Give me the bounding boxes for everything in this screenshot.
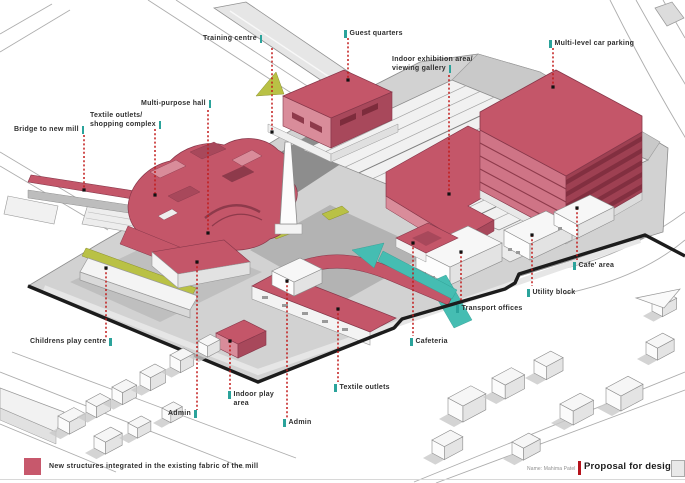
label-childrens-play-centre: Childrens play centre [30,338,112,347]
label-textile-outlets: Textile outlets [334,384,390,393]
marker-tick-icon [194,410,197,418]
label-text: Childrens play centre [30,338,106,347]
marker-tick-icon [209,100,212,108]
label-bridge-to-new-mill: Bridge to new mill [14,126,84,135]
label-cafe-area: Cafe' area [573,262,614,271]
marker-tick-icon [283,419,286,427]
sheet-bottom-edge [0,479,685,480]
label-text: Utility block [533,289,576,298]
label-admin-south: Admin [283,419,312,428]
label-text: Transport offices [462,305,523,314]
label-text: Admin [289,419,312,428]
legend-text: New structures integrated in the existin… [49,463,258,470]
label-text: Indoor exhibition area/ [392,56,473,65]
marker-tick-icon [573,262,576,270]
label-text: Multi-purpose hall [141,100,206,109]
label-text: Bridge to new mill [14,126,79,135]
label-indoor-exhibition: Indoor exhibition area/ viewing gallery [392,56,473,73]
label-text: Multi-level car parking [555,40,635,49]
label-text: Indoor play [234,391,274,400]
label-text: Admin [168,410,191,419]
label-text: Textile outlets/ [90,112,143,121]
label-text: Training centre [203,35,257,44]
title-divider-bar [578,461,581,475]
proposal-for-design-sheet: Training centre Guest quarters Multi-lev… [0,0,685,483]
label-admin-west: Admin [168,410,197,419]
label-indoor-play-area: Indoor play area [228,391,274,408]
marker-tick-icon [109,338,112,346]
marker-tick-icon [260,35,263,43]
marker-tick-icon [549,40,552,48]
legend-swatch [24,458,41,475]
label-text: Textile outlets [340,384,390,393]
label-transport-offices: Transport offices [456,305,523,314]
marker-tick-icon [527,289,530,297]
label-text: area [234,400,249,409]
label-text: shopping complex [90,121,156,130]
marker-tick-icon [456,305,459,313]
label-cafeteria: Cafeteria [410,338,448,347]
label-guest-quarters: Guest quarters [344,30,403,39]
label-text: Guest quarters [350,30,403,39]
label-utility-block: Utility block [527,289,575,298]
label-multi-purpose-hall: Multi-purpose hall [141,100,211,109]
label-text: viewing gallery [392,65,446,74]
site-plan-illustration [0,0,685,483]
marker-tick-icon [82,126,85,134]
marker-tick-icon [228,391,231,399]
legend: New structures integrated in the existin… [24,458,258,475]
label-text: Cafeteria [416,338,448,347]
marker-tick-icon [410,338,413,346]
label-textile-outlets-complex: Textile outlets/ shopping complex [90,112,161,129]
sheet-title: Proposal for design [584,461,677,472]
label-training-centre: Training centre [203,35,262,44]
marker-tick-icon [159,121,162,129]
marker-tick-icon [449,65,452,73]
author-credit: Name: Mahima Patel [527,466,576,472]
label-text: Cafe' area [579,262,615,271]
context-block-topright [655,2,684,26]
marker-tick-icon [334,384,337,392]
label-multi-level-car-parking: Multi-level car parking [549,40,634,49]
marker-tick-icon [344,30,347,38]
logo-box [671,460,685,477]
